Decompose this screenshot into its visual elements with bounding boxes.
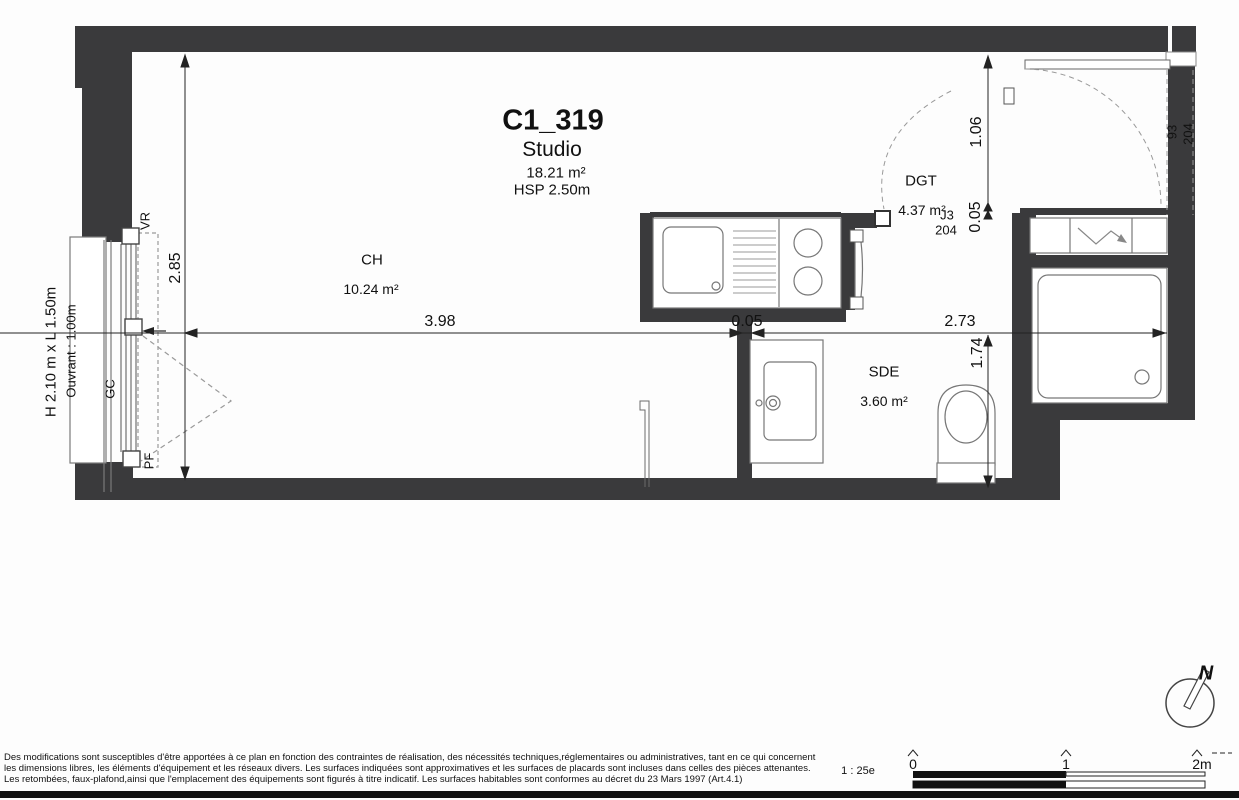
scale-tick-2: 2m (1192, 756, 1211, 772)
room-area-dgt: 4.37 m² (898, 202, 945, 218)
footer-line-2: les dimensions libres, les éléments d'éq… (4, 763, 811, 774)
tag-gc: GC (103, 379, 118, 399)
joinery-j3-height: 204 (935, 223, 957, 238)
joinery-code-j3: J3 (940, 208, 954, 223)
room-code-dgt: DGT (905, 173, 937, 190)
walls (75, 26, 1196, 500)
dim-arrow (185, 329, 197, 337)
wall-closet-front (1020, 208, 1168, 215)
window-swing (141, 336, 231, 461)
scale-ratio: 1 : 25e (841, 765, 875, 777)
dim-entry-partition: 0.05 (967, 201, 985, 232)
sink-drain (712, 282, 720, 290)
room-code-sde: SDE (869, 364, 900, 381)
tag-vr: VR (138, 212, 153, 230)
scale-bar-lower-filled (913, 781, 1066, 788)
entry-jamb-marker (1004, 88, 1014, 104)
room-area-ch: 10.24 m² (343, 281, 398, 297)
unit-area: 18.21 m² (526, 165, 585, 182)
washbasin-drain-inner (770, 400, 777, 407)
window-size-label: H 2.10 m x L 1.50m (43, 287, 60, 417)
entry-door-width: 93 (1165, 125, 1180, 139)
dgt-door-hinge-post (875, 211, 890, 226)
window-frame-lines (121, 244, 136, 452)
dim-arrow (181, 55, 189, 67)
room-code-ch: CH (361, 252, 383, 269)
toilet-bowl (945, 391, 987, 443)
wall-kitchen-left (640, 213, 654, 322)
floor-plan-page: C1_319 Studio 18.21 m² HSP 2.50m CH 10.2… (0, 0, 1239, 800)
north-label: N (1199, 663, 1213, 686)
wall-kitchen-top-line (650, 212, 841, 217)
dim-arrow (984, 203, 992, 211)
window-opening-label: Ouvrant : 1.00m (64, 304, 79, 397)
hob-burner (794, 229, 822, 257)
wall-bottom-right-join (1028, 403, 1060, 500)
floor-plan-drawing (0, 0, 1239, 800)
wall-top (75, 26, 1168, 52)
unit-id: C1_319 (502, 105, 604, 138)
wall-left (82, 88, 132, 242)
dim-partition: 0.05 (731, 313, 762, 331)
dim-sde-depth: 1.74 (969, 337, 987, 368)
dgt-door-leaf (855, 242, 863, 297)
hob-burner (794, 267, 822, 295)
entry-door-leaf (1025, 60, 1170, 69)
scale-seg-1-2-top (1066, 772, 1205, 776)
wall-kitchen-right-top (841, 213, 877, 228)
wall-left-pier (75, 52, 132, 88)
scale-seg-0-1-top (913, 771, 1066, 778)
dim-arrow (984, 211, 992, 219)
wall-right (1168, 66, 1195, 420)
footer-line-3: Les retombées, faux-plafond,ainsi que l'… (4, 774, 742, 785)
dim-entry-depth: 1.06 (968, 116, 986, 147)
room-area-sde: 3.60 m² (860, 393, 907, 409)
tag-pf: PF (142, 453, 157, 470)
window-junction-squares (122, 228, 142, 467)
kitchen-return-line (640, 401, 649, 487)
dim-room-width: 3.98 (424, 313, 455, 331)
roller-shutter-box (138, 233, 158, 467)
dgt-door-pivot (850, 297, 863, 309)
footer-rule (0, 791, 1239, 798)
dim-room-depth: 2.85 (167, 252, 185, 283)
washbasin-tap (756, 400, 762, 406)
unit-type: Studio (522, 138, 582, 162)
dim-right-width: 2.73 (944, 313, 975, 331)
wall-bottom (105, 478, 1060, 500)
entry-door-swing (1025, 69, 1161, 205)
kitchenette (653, 218, 841, 308)
scale-tick-1: 1 (1062, 756, 1070, 772)
shower-drain (1135, 370, 1149, 384)
dgt-door-swing (882, 91, 951, 209)
dgt-door-pivot (850, 230, 863, 242)
wall-under-cabinet (1020, 255, 1168, 268)
dim-arrow (181, 467, 189, 479)
window-opening-arrow (142, 327, 154, 335)
ceiling-height: HSP 2.50m (514, 182, 590, 199)
footer-line-1: Des modifications sont susceptibles d'êt… (4, 752, 815, 763)
entry-door-height: 204 (1181, 123, 1196, 145)
scale-tick-0: 0 (909, 756, 917, 772)
dim-arrow (984, 56, 992, 68)
technical-cabinet (1030, 218, 1167, 253)
